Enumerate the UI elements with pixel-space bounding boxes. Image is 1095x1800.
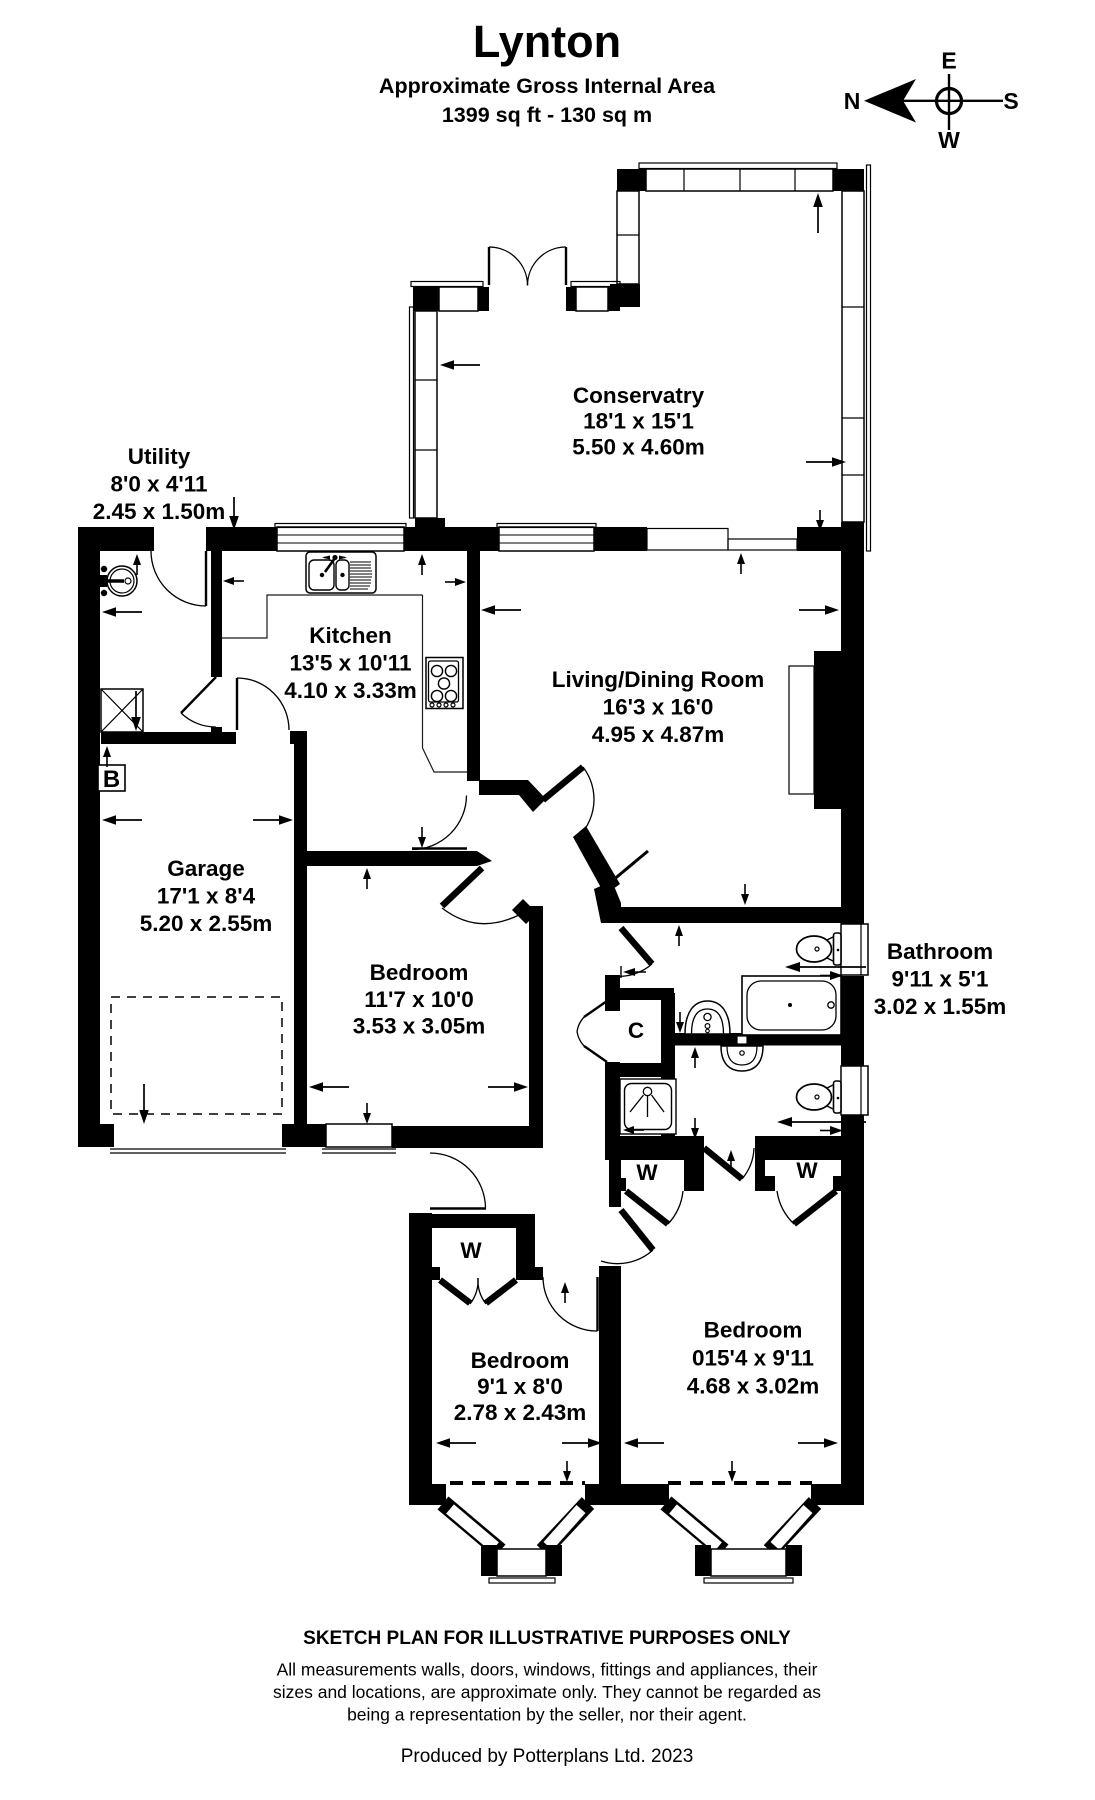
svg-text:1399 sq ft - 130 sq m: 1399 sq ft - 130 sq m (442, 103, 652, 127)
svg-text:16'3 x 16'0: 16'3 x 16'0 (603, 695, 714, 720)
svg-text:5.20 x 2.55m: 5.20 x 2.55m (140, 911, 273, 936)
svg-text:18'1 x 15'1: 18'1 x 15'1 (583, 409, 694, 434)
svg-text:3.53 x 3.05m: 3.53 x 3.05m (353, 1014, 486, 1039)
svg-text:All measurements walls, doors,: All measurements walls, doors, windows, … (277, 1660, 818, 1680)
svg-text:Produced by Potterplans Ltd. 2: Produced by Potterplans Ltd. 2023 (401, 1746, 694, 1767)
svg-text:Living/Dining Room: Living/Dining Room (552, 667, 764, 692)
svg-text:N: N (844, 88, 861, 114)
svg-text:2.78 x 2.43m: 2.78 x 2.43m (454, 1400, 587, 1425)
svg-text:11'7 x 10'0: 11'7 x 10'0 (364, 987, 474, 1012)
svg-text:9'1 x 8'0: 9'1 x 8'0 (477, 1374, 563, 1399)
svg-text:S: S (1003, 88, 1018, 114)
svg-text:Bedroom: Bedroom (471, 1348, 570, 1373)
svg-text:Garage: Garage (167, 856, 245, 881)
svg-text:W: W (796, 1158, 818, 1183)
svg-text:17'1 x 8'4: 17'1 x 8'4 (157, 884, 256, 909)
svg-text:being a representation by the: being a representation by the seller, no… (347, 1705, 747, 1725)
svg-text:Bedroom: Bedroom (370, 960, 469, 985)
svg-text:Utility: Utility (128, 444, 191, 469)
svg-text:W: W (938, 127, 960, 153)
svg-text:W: W (460, 1238, 482, 1263)
svg-text:Lynton: Lynton (473, 16, 621, 67)
svg-text:015'4 x 9'11: 015'4 x 9'11 (692, 1346, 814, 1371)
svg-text:sizes and locations, are appro: sizes and locations, are approximate onl… (273, 1682, 821, 1702)
svg-text:2.45 x 1.50m: 2.45 x 1.50m (93, 499, 226, 524)
svg-text:5.50 x 4.60m: 5.50 x 4.60m (572, 435, 705, 460)
svg-text:Conservatry: Conservatry (573, 383, 705, 408)
svg-text:Approximate Gross Internal Are: Approximate Gross Internal Area (379, 74, 716, 98)
svg-text:8'0 x 4'11: 8'0 x 4'11 (110, 472, 207, 497)
svg-text:B: B (103, 766, 120, 793)
svg-text:4.68 x 3.02m: 4.68 x 3.02m (687, 1374, 820, 1399)
svg-text:SKETCH PLAN FOR ILLUSTRATIVE P: SKETCH PLAN FOR ILLUSTRATIVE PURPOSES ON… (303, 1628, 791, 1649)
svg-text:C: C (628, 1018, 644, 1043)
svg-text:3.02 x 1.55m: 3.02 x 1.55m (874, 994, 1007, 1019)
svg-text:W: W (636, 1160, 658, 1185)
svg-text:13'5 x 10'11: 13'5 x 10'11 (289, 651, 411, 676)
svg-text:Kitchen: Kitchen (309, 623, 392, 648)
svg-text:Bathroom: Bathroom (887, 939, 993, 964)
svg-text:E: E (941, 48, 956, 74)
svg-text:4.10 x 3.33m: 4.10 x 3.33m (284, 678, 417, 703)
svg-text:4.95 x 4.87m: 4.95 x 4.87m (592, 722, 725, 747)
svg-text:9'11 x 5'1: 9'11 x 5'1 (891, 967, 988, 992)
svg-text:Bedroom: Bedroom (704, 1318, 803, 1343)
